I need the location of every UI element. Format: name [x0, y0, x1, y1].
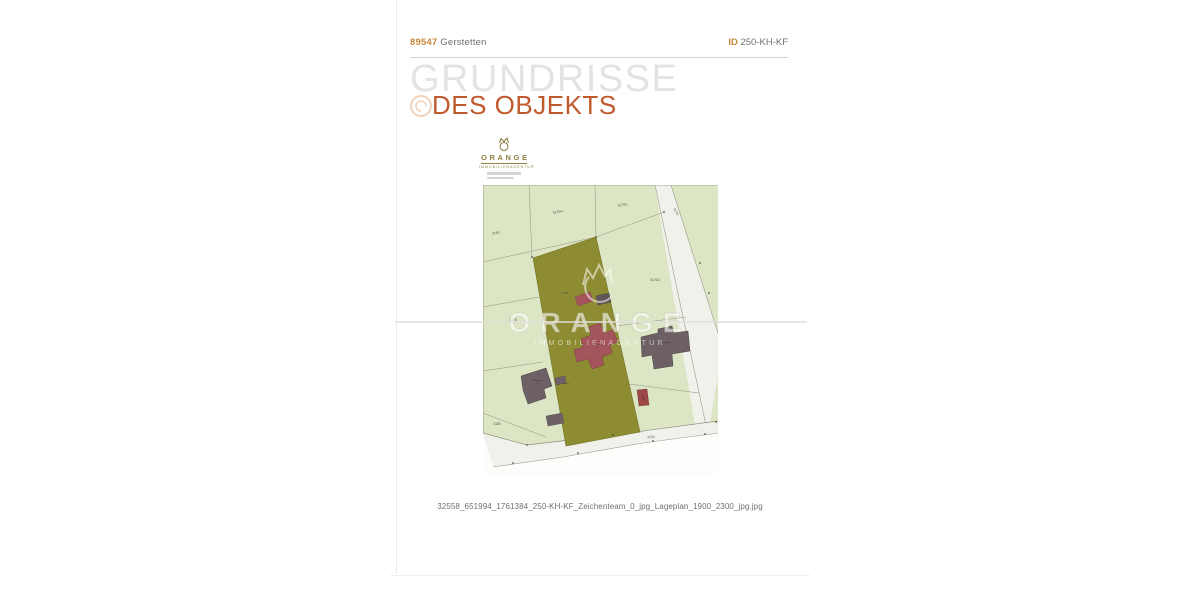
page-edge-line — [390, 575, 810, 576]
plan-label: Birkenweg — [533, 379, 544, 382]
plan-label: 3204 — [647, 435, 655, 440]
survey-point — [612, 434, 613, 435]
id-value: 250-KH-KF — [740, 37, 788, 48]
header-object-id: ID 250-KH-KF — [678, 37, 788, 48]
survey-point — [663, 211, 664, 212]
header-location: 89547 Gerstetten — [410, 37, 487, 48]
survey-point — [704, 433, 705, 434]
logo-subtitle: IMMOBILIENAGENTUR — [478, 165, 530, 169]
survey-point — [526, 444, 527, 445]
survey-point — [577, 452, 578, 453]
survey-point — [652, 440, 653, 441]
plan-label: 3178 — [562, 291, 569, 295]
postal-code: 89547 — [410, 37, 437, 48]
ring-swirl-icon — [408, 93, 434, 119]
filename-caption: 32558_651994_1761384_250-KH-KF_Zeichente… — [398, 502, 802, 511]
city-name: Gerstetten — [440, 37, 486, 48]
logo-name: ORANGE — [478, 153, 530, 162]
fine-print — [487, 172, 521, 181]
survey-point — [699, 262, 700, 263]
orange-crown-icon — [496, 136, 512, 152]
watermark-subtitle: IMMOBILIENAGENTUR — [534, 338, 666, 347]
fine-print-line — [487, 172, 521, 175]
scan-artifact-line — [395, 321, 807, 323]
page-edge-line — [396, 0, 397, 574]
plan-label: Garage — [563, 383, 569, 385]
plan-label: 3180 — [493, 422, 501, 426]
fine-print-line — [487, 177, 514, 180]
logo-divider — [481, 163, 527, 164]
survey-point — [715, 421, 716, 422]
id-label: ID — [728, 37, 738, 48]
agency-logo: ORANGE IMMOBILIENAGENTUR — [478, 136, 530, 169]
survey-point — [531, 256, 532, 257]
site-plan-image: 3176/43176/1317931803176/231783178318032… — [483, 185, 718, 475]
survey-point — [708, 292, 709, 293]
scanned-document-page: 89547 Gerstetten ID 250-KH-KF GRUNDRISSE… — [0, 0, 1200, 600]
survey-point — [595, 236, 596, 237]
page-title-foreground: DES OBJEKTS — [432, 92, 617, 118]
plan-label: 3176/2 — [650, 278, 660, 282]
survey-point — [512, 462, 513, 463]
